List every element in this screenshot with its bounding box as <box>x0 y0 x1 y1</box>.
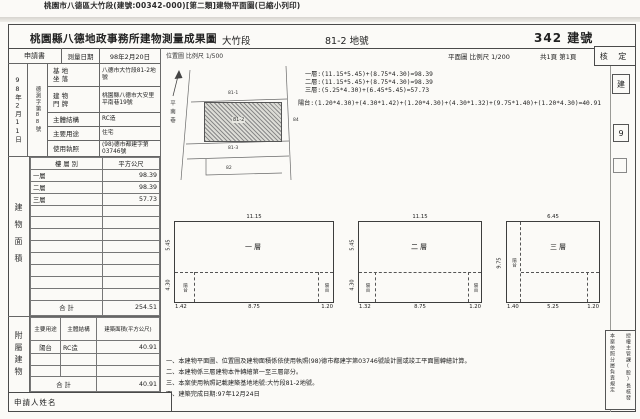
applicant-name-field: 申請人姓名 <box>8 392 172 412</box>
site-value: 八德市大竹段81-2地號 <box>100 63 160 87</box>
dimension-label: 1.40 <box>507 304 519 310</box>
plan-section-divider <box>359 272 481 273</box>
delegation-stamp-box: 本案依照分層負責規定 授權主管課(股)長核發 <box>605 330 636 410</box>
note-line: 二、本建物係三層建物本件轉繪第一至三層部分。 <box>166 367 638 378</box>
note-line: 三、本案使用執照記載建築基地地號:大竹段81-2地號。 <box>166 378 638 389</box>
balcony-right: 陽台 <box>318 272 333 302</box>
document-title: 桃園縣八德地政事務所建物測量成果圖 <box>30 31 217 46</box>
floor-name: 二層 <box>31 181 103 193</box>
table-row: 一層 98.39 <box>31 169 160 181</box>
page-count-label: 共1頁 第1頁 <box>540 51 576 61</box>
dimension-label: 4.30 <box>166 279 172 290</box>
table-row-empty <box>31 276 160 288</box>
address-value: 桃園縣八德市大安里平南巷19號 <box>100 87 160 113</box>
floor-plan-scale-label: 平面圖 比例尺 1/200 <box>448 51 510 61</box>
bottom-dimensions: 1.42 8.75 1.20 <box>174 304 334 310</box>
parcel-label: 81-3 <box>228 146 238 151</box>
usage-label: 主要用途 <box>48 127 100 141</box>
structure-label: 主體結構 <box>48 113 100 127</box>
floor-col-header: 樓 層 別 <box>31 158 103 170</box>
structure-col-header: 主體結構 <box>61 318 97 341</box>
accessory-area: 40.91 <box>97 340 160 354</box>
stamp-text-right: 授權主管課(股)長核發 <box>625 333 632 407</box>
building-number: 342 建號 <box>534 29 593 46</box>
approval-stamp-box: 核 定 <box>594 46 636 66</box>
balcony-label: 陽台 <box>511 258 517 267</box>
formula-balcony: 陽台:(1.20*4.30)+(4.30*1.42)+(1.20*4.30)+(… <box>298 98 601 107</box>
parcel-label-main: 81-2 <box>232 117 245 123</box>
margin-mark-box-3 <box>613 158 627 173</box>
dimension-label: 5.25 <box>547 304 559 310</box>
license-label: 使用執照 <box>48 141 100 156</box>
scan-artifact-band <box>0 17 640 22</box>
balcony-label: 陽台 <box>364 283 370 292</box>
floor-plan-name: 一層 <box>175 242 333 252</box>
balcony-label: 陽台 <box>472 283 478 292</box>
note-line: 一、本建物平面圖、位置圖及建物面積係依使用執照(98)德市都建字第03746號設… <box>166 356 638 367</box>
parcel-label: 84 <box>293 118 299 123</box>
dimension-label: 6.45 <box>506 214 600 220</box>
table-row-empty <box>31 354 160 365</box>
balcony-right: 陽台 <box>468 272 481 302</box>
table-total-row: 合 計 254.51 <box>31 300 160 315</box>
margin-mark-box-1: 建 <box>612 74 630 94</box>
floor-plan-name: 二層 <box>359 242 481 252</box>
structure-value: RC造 <box>100 113 160 127</box>
table-row-empty <box>31 217 160 229</box>
dimension-label: 11.15 <box>358 214 482 220</box>
dimension-label: 1.20 <box>587 304 599 310</box>
application-label: 申請書 <box>8 48 62 63</box>
street-name-label: 平南巷 <box>168 100 176 126</box>
table-row-empty <box>31 288 160 300</box>
floor-area: 98.39 <box>103 169 160 181</box>
area-col-header: 建築面積(平方公尺) <box>97 318 160 341</box>
dimension-label: 1.20 <box>469 304 481 310</box>
table-row-empty <box>31 253 160 265</box>
margin-mark-box-2: 9 <box>613 124 629 142</box>
location-map-scale-label: 位置圖 比例尺 1/500 <box>166 51 223 60</box>
floor-area-table: 建物面積 樓 層 別 平方公尺 一層 98.39 二層 98.39 三層 57.… <box>8 156 160 316</box>
bottom-dimensions: 1.32 8.75 1.20 <box>358 304 482 310</box>
balcony-left: 陽台 <box>359 272 376 302</box>
accessory-building-table: 附屬建物 主要用途 主體結構 建築面積(平方公尺) 陽台 RC造 40.91 合… <box>8 316 160 392</box>
accessory-table: 主要用途 主體結構 建築面積(平方公尺) 陽台 RC造 40.91 合 計 40… <box>30 317 160 392</box>
balcony-label: 陽台 <box>182 283 188 292</box>
floor-plan-2: 11.15 二層 陽台 陽台 5.45 4.30 1.32 8.75 1.20 <box>358 214 482 310</box>
stamp-text-left: 本案依照分層負責規定 <box>609 333 616 407</box>
floor-table: 樓 層 別 平方公尺 一層 98.39 二層 98.39 三層 57.73 <box>30 157 160 316</box>
accessory-total-value: 40.91 <box>97 377 160 392</box>
table-header-row: 主要用途 主體結構 建築面積(平方公尺) <box>31 318 160 341</box>
balcony-right <box>587 272 599 302</box>
accessory-usage: 陽台 <box>31 340 61 354</box>
dimension-label: 1.20 <box>321 304 333 310</box>
plan-section-divider <box>175 272 333 273</box>
site-label: 基 地 坐 落 <box>48 63 100 87</box>
parcel-label: 81-1 <box>228 91 238 96</box>
table-row: 三層 57.73 <box>31 193 160 205</box>
table-row-empty <box>31 265 160 277</box>
floor-plan-outline: 三層 陽台 9.75 <box>506 221 600 303</box>
scanned-survey-document: 桃園市八德區大竹段(建號:00342-000)[第二類]建物平面圖(已縮小列印)… <box>0 0 640 419</box>
floor-total-label: 合 計 <box>31 300 103 315</box>
address-label: 建 物 門 牌 <box>48 87 100 113</box>
dimension-label: 4.30 <box>350 279 356 290</box>
formula-floor-3: 三層:(5.25*4.30)+(6.45*5.45)=57.73 <box>305 85 429 94</box>
parcel-label: 82 <box>226 166 232 171</box>
table-row: 陽台 RC造 40.91 <box>31 340 160 354</box>
floor-area: 98.39 <box>103 181 160 193</box>
floor-table-section-label: 建物面積 <box>8 157 30 316</box>
usage-col-header: 主要用途 <box>31 318 61 341</box>
accessory-total-label: 合 計 <box>31 377 97 392</box>
receipt-number: 德測字第88號 <box>28 63 48 156</box>
dimension-label: 1.42 <box>175 304 187 310</box>
table-row: 二層 98.39 <box>31 181 160 193</box>
floor-plan-outline: 一層 陽台 陽台 5.45 4.30 <box>174 221 334 303</box>
dimension-label: 8.75 <box>248 304 260 310</box>
floor-name: 一層 <box>31 169 103 181</box>
table-row-empty <box>31 205 160 217</box>
floor-plan-3: 6.45 三層 陽台 9.75 1.40 5.25 1.20 <box>506 214 600 310</box>
accessory-structure: RC造 <box>61 340 97 354</box>
floor-name: 三層 <box>31 193 103 205</box>
table-row-empty <box>31 229 160 241</box>
floor-plan-1: 11.15 一層 陽台 陽台 5.45 4.30 1.42 8.75 1.20 <box>174 214 334 310</box>
floor-total-value: 254.51 <box>103 300 160 315</box>
dimension-label: 11.15 <box>174 214 334 220</box>
floor-area: 57.73 <box>103 193 160 205</box>
land-section-name: 大竹段 <box>222 33 251 47</box>
survey-date-value: 98年2月20日 <box>100 48 160 63</box>
accessory-section-label: 附屬建物 <box>8 317 30 392</box>
dimension-label: 5.45 <box>166 239 172 250</box>
floor-plan-outline: 二層 陽台 陽台 5.45 4.30 <box>358 221 482 303</box>
dimension-label: 1.32 <box>359 304 371 310</box>
north-arrow-icon <box>173 70 183 96</box>
table-header-row: 樓 層 別 平方公尺 <box>31 158 160 170</box>
bottom-dimensions: 1.40 5.25 1.20 <box>506 304 600 310</box>
dimension-label: 9.75 <box>497 257 503 268</box>
dimension-label: 5.45 <box>350 239 356 250</box>
balcony-left-strip: 陽台 <box>507 222 521 302</box>
floor-plan-name: 三層 <box>519 242 599 252</box>
balcony-label: 陽台 <box>323 283 329 292</box>
receipt-date: 98年2月11日 <box>8 63 28 156</box>
dimension-label: 8.75 <box>414 304 426 310</box>
balcony-left: 陽台 <box>175 272 195 302</box>
land-number: 81-2 地號 <box>325 33 369 47</box>
area-col-header: 平方公尺 <box>103 158 160 170</box>
note-line: 四、建築完成日期:97年12月24日 <box>166 389 638 400</box>
table-total-row: 合 計 40.91 <box>31 377 160 392</box>
table-row-empty <box>31 365 160 376</box>
table-row-empty <box>31 241 160 253</box>
survey-date-label: 測量日期 <box>62 48 100 63</box>
license-value: (98)德市都建字第03746號 <box>100 141 160 156</box>
notes-block: 一、本建物平面圖、位置圖及建物面積係依使用執照(98)德市都建字第03746號設… <box>166 356 638 400</box>
usage-value: 住宅 <box>100 127 160 141</box>
print-header-line: 桃園市八德區大竹段(建號:00342-000)[第二類]建物平面圖(已縮小列印) <box>44 0 300 11</box>
